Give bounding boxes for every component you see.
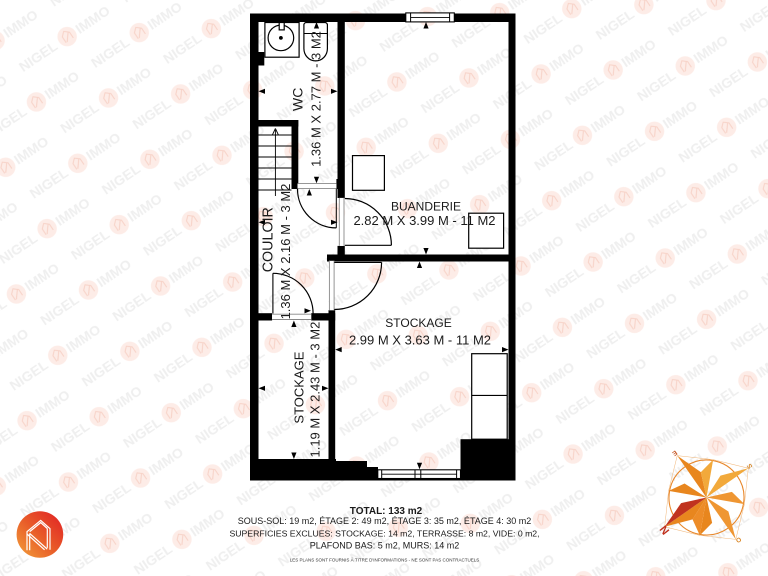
- svg-text:1.36 M X 2.77 M - 3 M2: 1.36 M X 2.77 M - 3 M2: [309, 31, 324, 167]
- svg-text:STOCKAGE: STOCKAGE: [385, 316, 451, 330]
- svg-text:BUANDERIE: BUANDERIE: [391, 200, 461, 214]
- svg-text:SUPERFICIES EXCLUES: STOCKAGE:: SUPERFICIES EXCLUES: STOCKAGE: 14 m2, TE…: [229, 528, 539, 538]
- svg-text:1.19 M X 2.43 M - 3 M2: 1.19 M X 2.43 M - 3 M2: [308, 322, 323, 458]
- svg-text:SOUS-SOL: 19 m2, ÉTAGE 2: 49 m: SOUS-SOL: 19 m2, ÉTAGE 2: 49 m2, ÉTAGE 3…: [238, 516, 532, 526]
- svg-text:LES PLANS SONT FOURNIS À TITRE: LES PLANS SONT FOURNIS À TITRE D'INFORMA…: [290, 556, 479, 562]
- svg-text:WC: WC: [290, 88, 306, 111]
- svg-text:2.99 M X 3.63 M - 11 M2: 2.99 M X 3.63 M - 11 M2: [349, 333, 491, 348]
- svg-text:COULOIR: COULOIR: [260, 207, 276, 272]
- svg-text:PLAFOND BAS: 5 m2, MURS: 14 m2: PLAFOND BAS: 5 m2, MURS: 14 m2: [310, 540, 460, 550]
- svg-text:STOCKAGE: STOCKAGE: [291, 351, 306, 423]
- svg-text:2.82 M X 3.99 M - 11 M2: 2.82 M X 3.99 M - 11 M2: [353, 213, 495, 228]
- svg-text:1.36 M X 2.16 M - 3 M2: 1.36 M X 2.16 M - 3 M2: [278, 184, 293, 320]
